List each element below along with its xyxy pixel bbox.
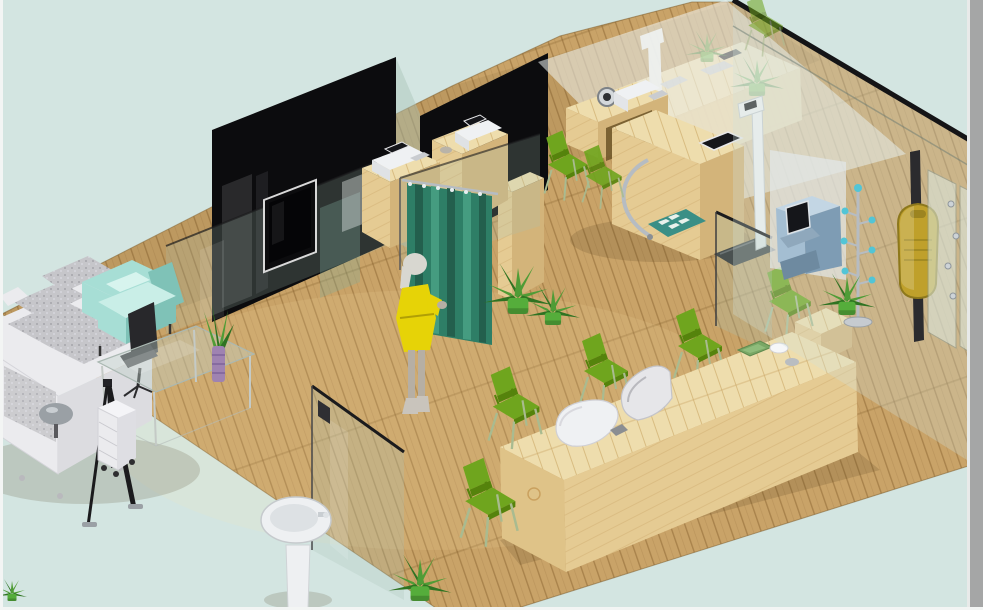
border-right-inner (967, 0, 970, 610)
interior-render (0, 0, 983, 610)
border-left (0, 0, 3, 610)
scene-canvas (0, 0, 983, 610)
kiosk (770, 150, 846, 280)
border-right (970, 0, 983, 610)
